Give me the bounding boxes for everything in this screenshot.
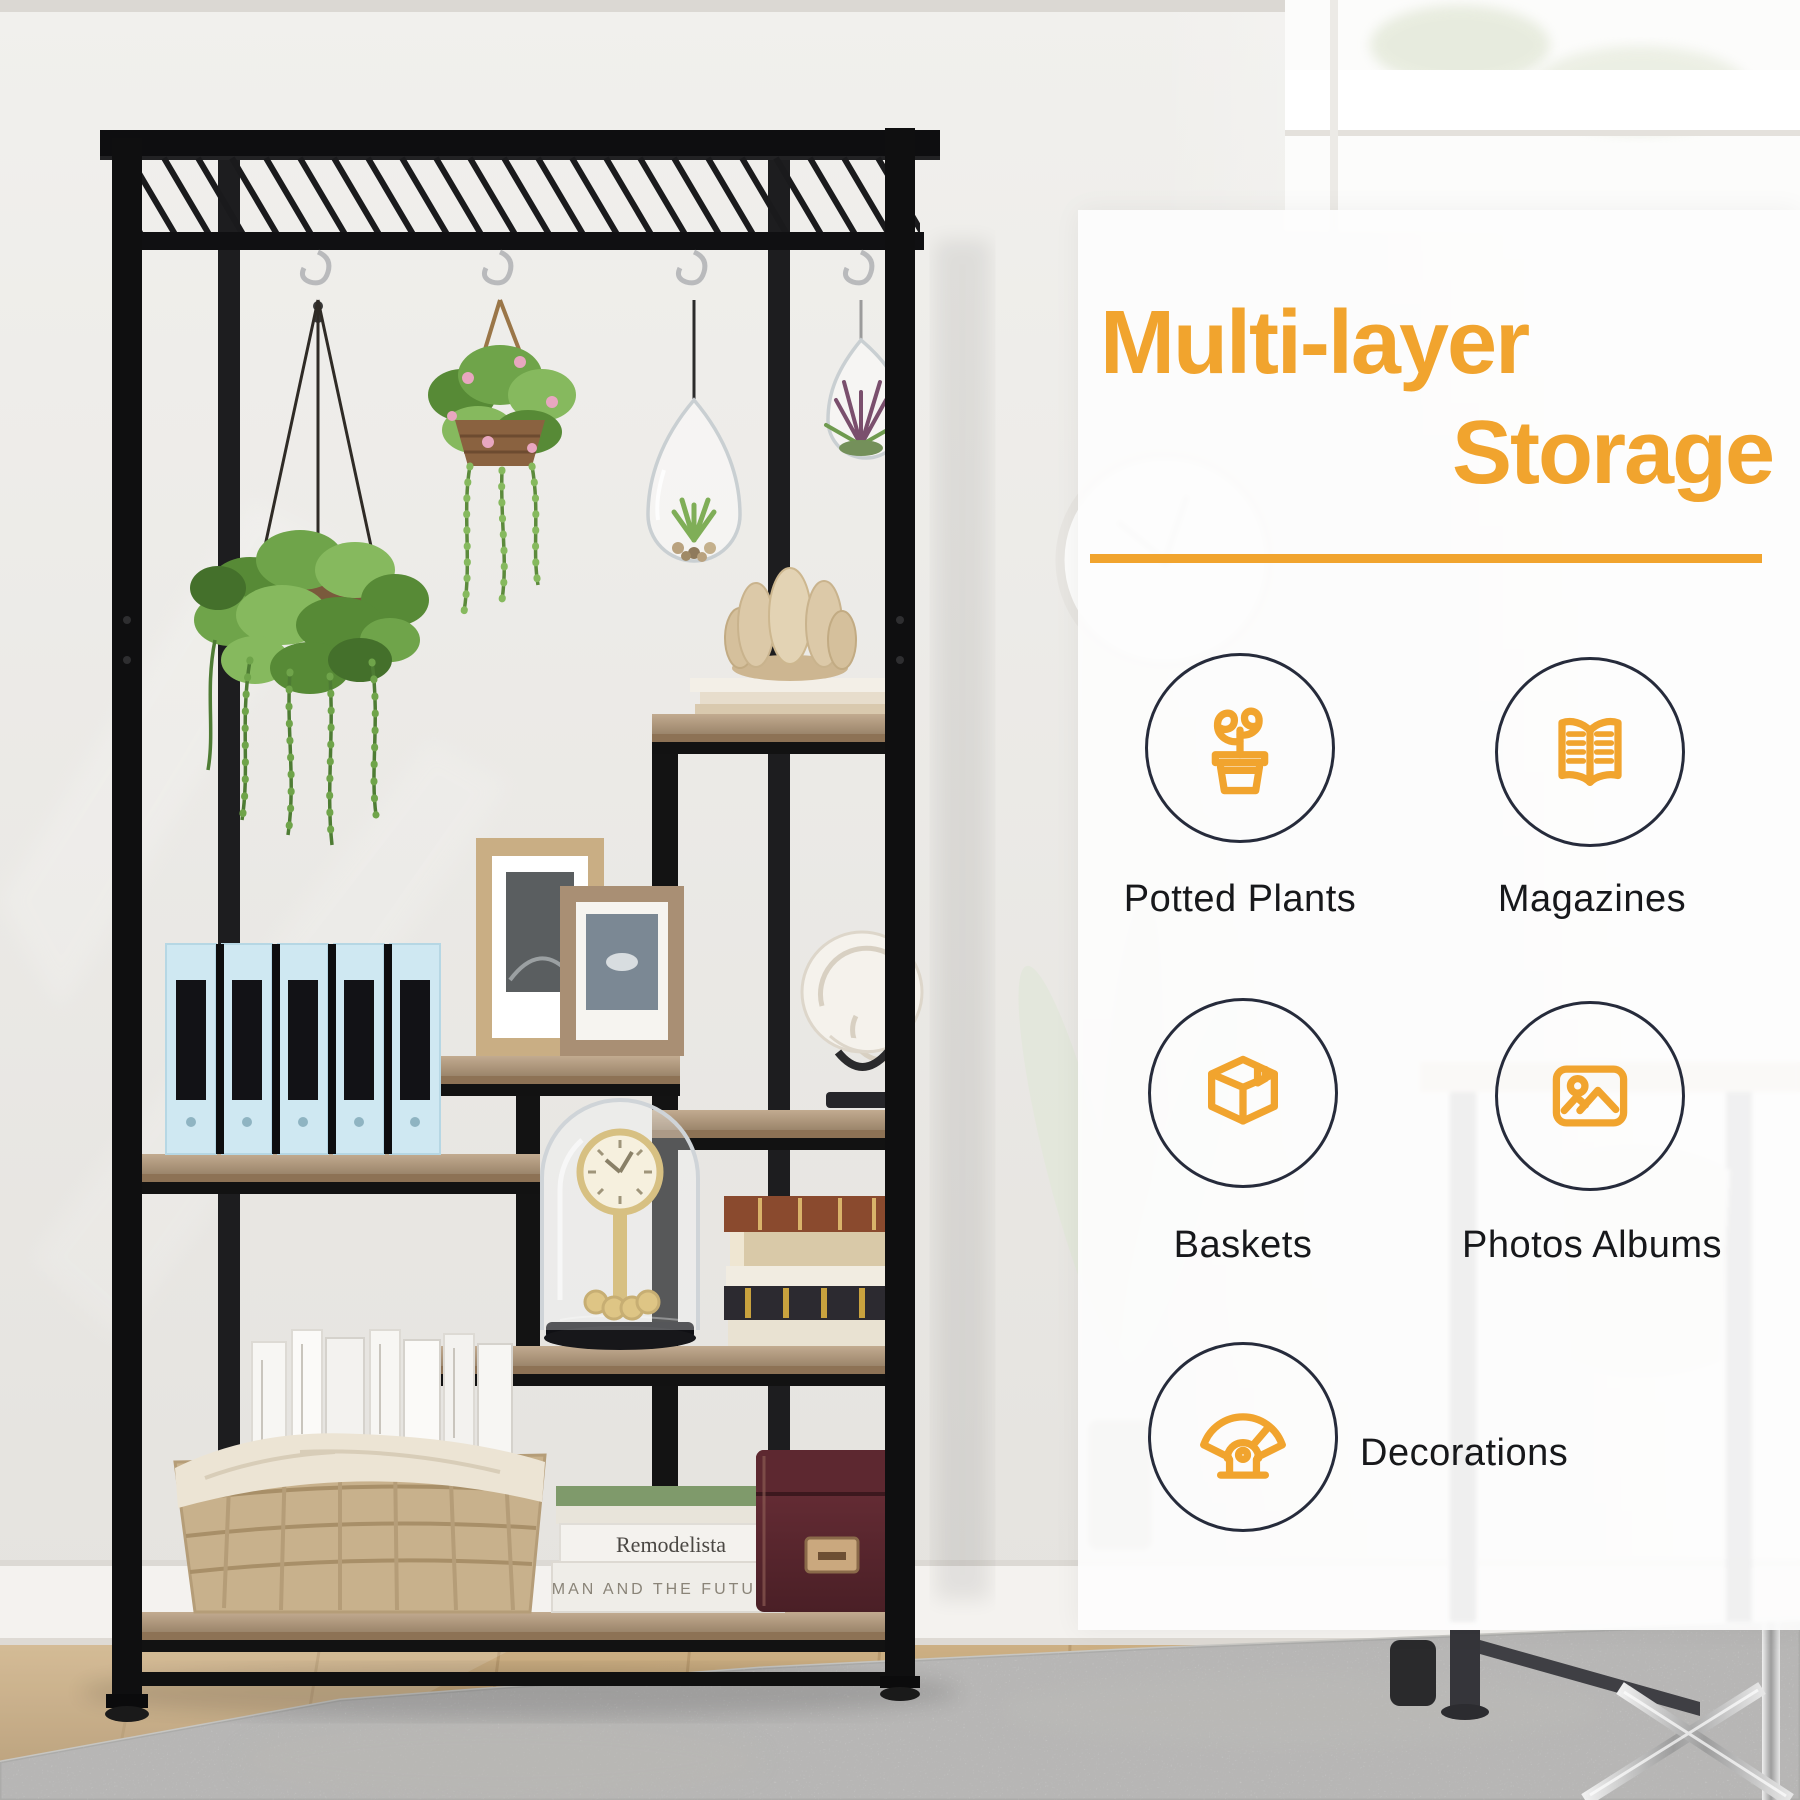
title-underline	[1090, 554, 1762, 563]
feature-circle-baskets	[1148, 998, 1338, 1188]
feature-label-decorations: Decorations	[1360, 1432, 1568, 1475]
feature-label-baskets: Baskets	[1103, 1224, 1383, 1267]
book-spine-man-and-the-future: MAN AND THE FUTURE	[552, 1581, 784, 1598]
feature-circle-potted-plants	[1145, 653, 1335, 843]
book-spine-remodelista: Remodelista	[616, 1532, 726, 1557]
file-binders	[166, 944, 440, 1154]
info-panel: Multi-layer Storage Design Potted Plants	[1078, 210, 1800, 1630]
dome-clock	[542, 1100, 698, 1350]
hand-fan-icon	[1187, 1381, 1299, 1493]
potted-plant-icon	[1184, 692, 1296, 804]
stacked-books	[724, 1196, 904, 1346]
storage-box-icon	[1187, 1037, 1299, 1149]
panel-title-line2: Storage Design	[1452, 408, 1732, 498]
photo-frame-icon	[1534, 1040, 1646, 1152]
feature-label-photos-albums: Photos Albums	[1452, 1224, 1732, 1267]
open-book-icon	[1534, 696, 1646, 808]
floor-shelf-books: Remodelista MAN AND THE FUTURE	[552, 1486, 784, 1612]
feature-circle-decorations	[1148, 1342, 1338, 1532]
storage-box	[756, 1450, 906, 1612]
feature-circle-photos-albums	[1495, 1001, 1685, 1191]
window	[1285, 0, 1800, 230]
feature-label-magazines: Magazines	[1452, 878, 1732, 921]
feature-label-potted-plants: Potted Plants	[1100, 878, 1380, 921]
feature-circle-magazines	[1495, 657, 1685, 847]
panel-title-line1: Multi-layer	[1100, 298, 1380, 388]
product-image: Remodelista MAN AND THE FUTURE	[0, 0, 1800, 1800]
